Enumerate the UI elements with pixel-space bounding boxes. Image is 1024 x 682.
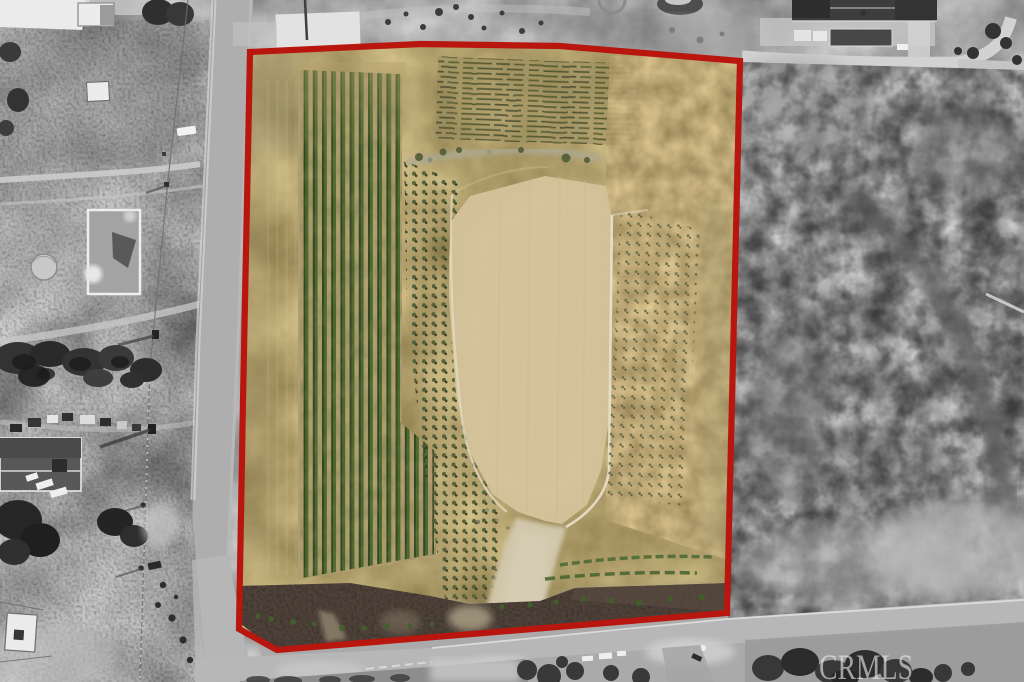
svg-text:CRMLS: CRMLS bbox=[819, 647, 913, 682]
